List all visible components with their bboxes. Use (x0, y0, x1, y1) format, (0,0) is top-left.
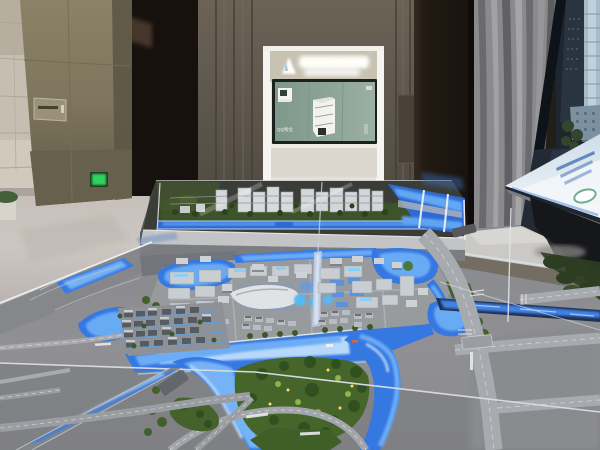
svg-text:宁波城市展览馆: 宁波城市展览馆 (301, 57, 367, 70)
svg-text:QQ物业: QQ物业 (277, 126, 294, 133)
